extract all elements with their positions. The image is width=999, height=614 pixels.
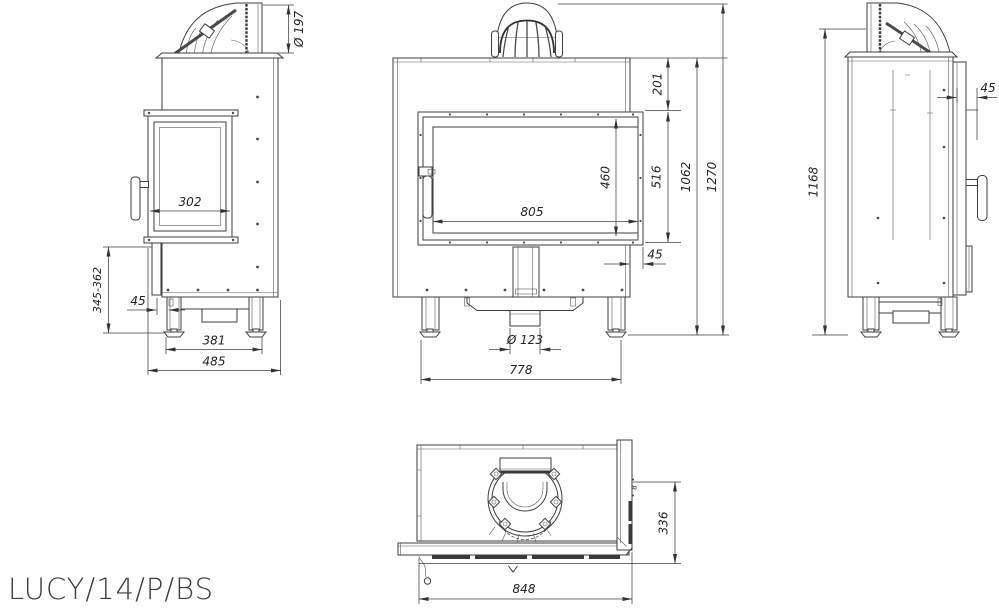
top-view: 336 8 848 bbox=[398, 440, 681, 604]
technical-drawing-page: Ø 197 302 345-362 45 381 485 bbox=[0, 0, 999, 614]
door-latch-hook-icon bbox=[419, 556, 518, 584]
svg-text:345-362: 345-362 bbox=[91, 267, 104, 313]
side-view-left: Ø 197 302 345-362 45 381 485 bbox=[91, 3, 306, 375]
svg-text:460: 460 bbox=[599, 166, 613, 189]
svg-text:45: 45 bbox=[980, 81, 995, 95]
svg-text:201: 201 bbox=[651, 73, 665, 96]
flue-elbow-icon bbox=[170, 3, 262, 57]
base-legs-side bbox=[164, 297, 266, 337]
dim-door-height: 516 bbox=[645, 112, 681, 243]
dim-air-inlet: Ø 123 bbox=[489, 328, 561, 354]
svg-text:1168: 1168 bbox=[807, 166, 821, 197]
door-handle-right bbox=[966, 176, 987, 221]
stove-body-right bbox=[845, 52, 972, 297]
svg-text:Ø 197: Ø 197 bbox=[292, 11, 306, 49]
svg-text:8: 8 bbox=[631, 485, 639, 490]
svg-text:1062: 1062 bbox=[679, 162, 693, 193]
svg-text:Ø 123: Ø 123 bbox=[506, 333, 543, 347]
svg-text:485: 485 bbox=[203, 355, 226, 369]
svg-text:1270: 1270 bbox=[705, 161, 719, 192]
front-view: 805 460 Ø 123 778 201 516 bbox=[393, 3, 729, 384]
svg-text:805: 805 bbox=[521, 205, 544, 219]
door-handle-side bbox=[131, 177, 149, 220]
base-right bbox=[861, 297, 959, 337]
svg-text:381: 381 bbox=[203, 334, 226, 348]
side-view-right: 45 1168 bbox=[807, 3, 998, 337]
dim-flue-diameter: Ø 197 bbox=[263, 5, 306, 53]
svg-text:778: 778 bbox=[510, 363, 533, 377]
svg-text:848: 848 bbox=[513, 582, 536, 596]
svg-text:516: 516 bbox=[650, 165, 664, 188]
dim-body-height: 1062 bbox=[679, 58, 697, 335]
svg-text:45: 45 bbox=[130, 294, 145, 308]
svg-text:302: 302 bbox=[179, 195, 202, 209]
svg-text:336: 336 bbox=[657, 511, 671, 534]
dim-width-plan: 848 bbox=[419, 552, 632, 604]
fireplace-technical-drawing: Ø 197 302 345-362 45 381 485 bbox=[0, 0, 999, 614]
dim-top-section: 201 bbox=[630, 58, 728, 111]
svg-text:45: 45 bbox=[647, 248, 662, 262]
flue-dome-icon bbox=[492, 3, 563, 57]
model-label: LUCY/14/P/BS bbox=[8, 572, 214, 606]
